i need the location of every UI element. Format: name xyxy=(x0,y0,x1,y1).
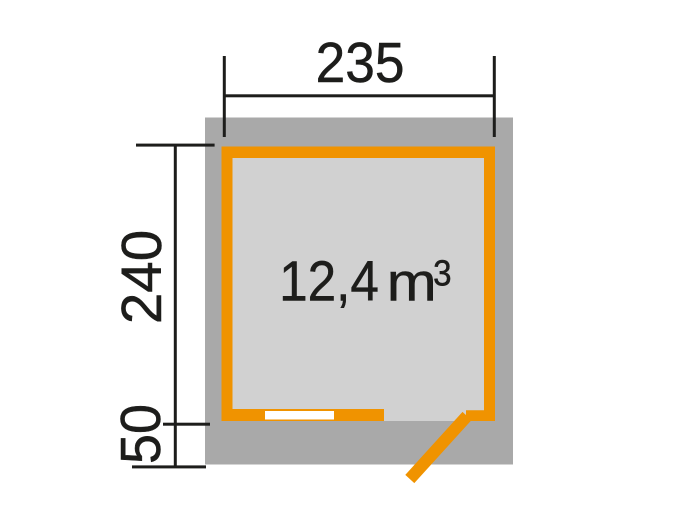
svg-text:3: 3 xyxy=(433,253,451,294)
svg-text:240: 240 xyxy=(110,230,173,324)
svg-text:50: 50 xyxy=(109,404,172,464)
svg-text:m: m xyxy=(387,252,437,313)
svg-text:235: 235 xyxy=(316,30,405,94)
svg-text:12,4: 12,4 xyxy=(279,250,379,313)
